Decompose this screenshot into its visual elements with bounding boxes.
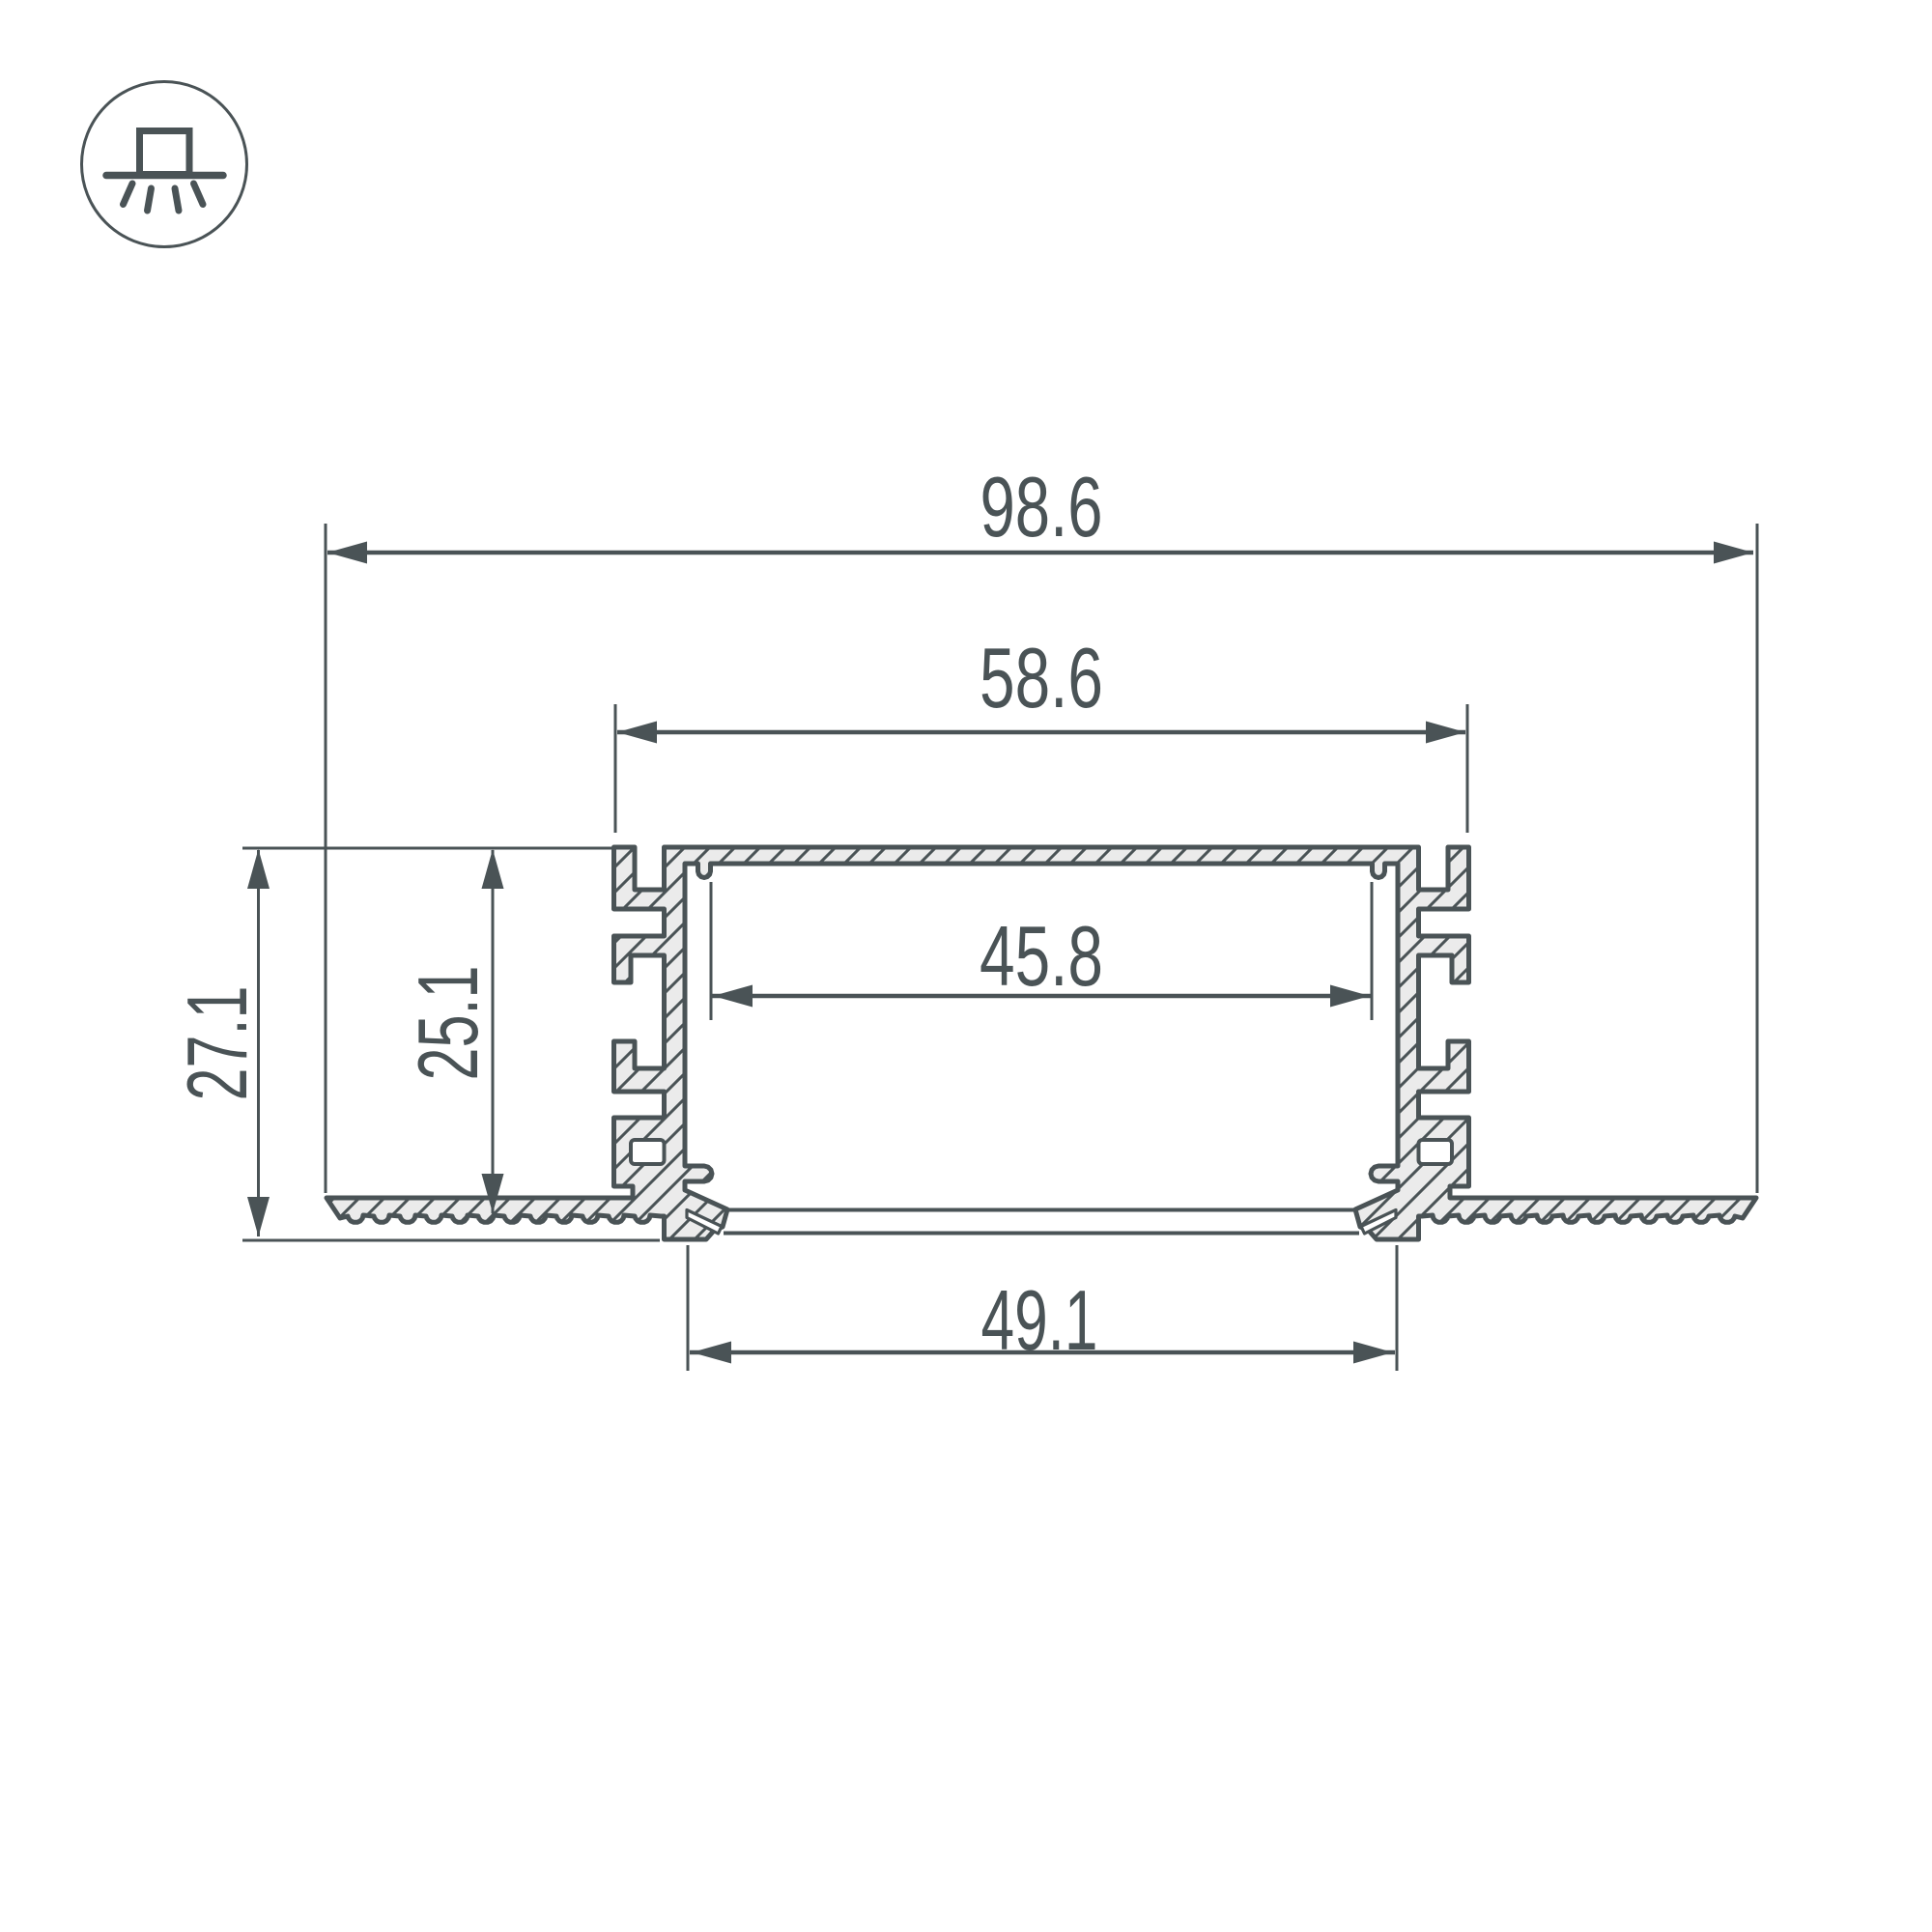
svg-text:58.6: 58.6 xyxy=(980,630,1103,725)
svg-text:45.8: 45.8 xyxy=(980,908,1103,1004)
svg-text:49.1: 49.1 xyxy=(981,1272,1098,1368)
svg-text:27.1: 27.1 xyxy=(169,986,265,1101)
svg-text:25.1: 25.1 xyxy=(400,966,496,1081)
svg-text:98.6: 98.6 xyxy=(980,459,1103,554)
